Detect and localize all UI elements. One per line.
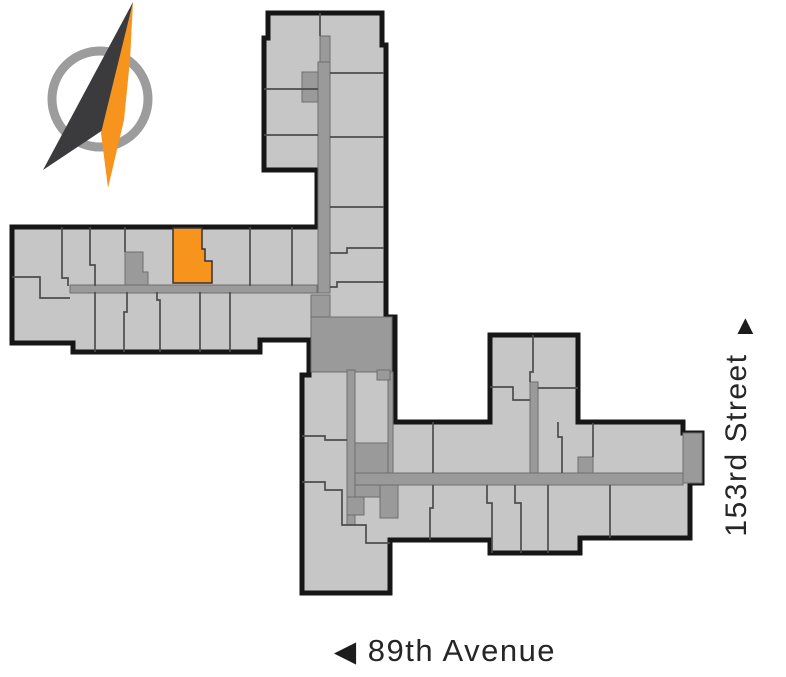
floorplan-svg	[0, 0, 786, 677]
street-label-153rd: 153rd Street	[720, 340, 760, 550]
street-label-153rd-text: 153rd Street	[720, 353, 753, 536]
street-label-89th-text: 89th Avenue	[368, 633, 556, 668]
compass-rose	[43, 2, 148, 188]
west-arrow-icon: ◀	[334, 636, 358, 668]
street-label-89th: ◀89th Avenue	[285, 633, 605, 669]
north-arrow-icon: ▲	[732, 310, 760, 341]
keyplan-page: ▲ 153rd Street ◀89th Avenue	[0, 0, 786, 677]
